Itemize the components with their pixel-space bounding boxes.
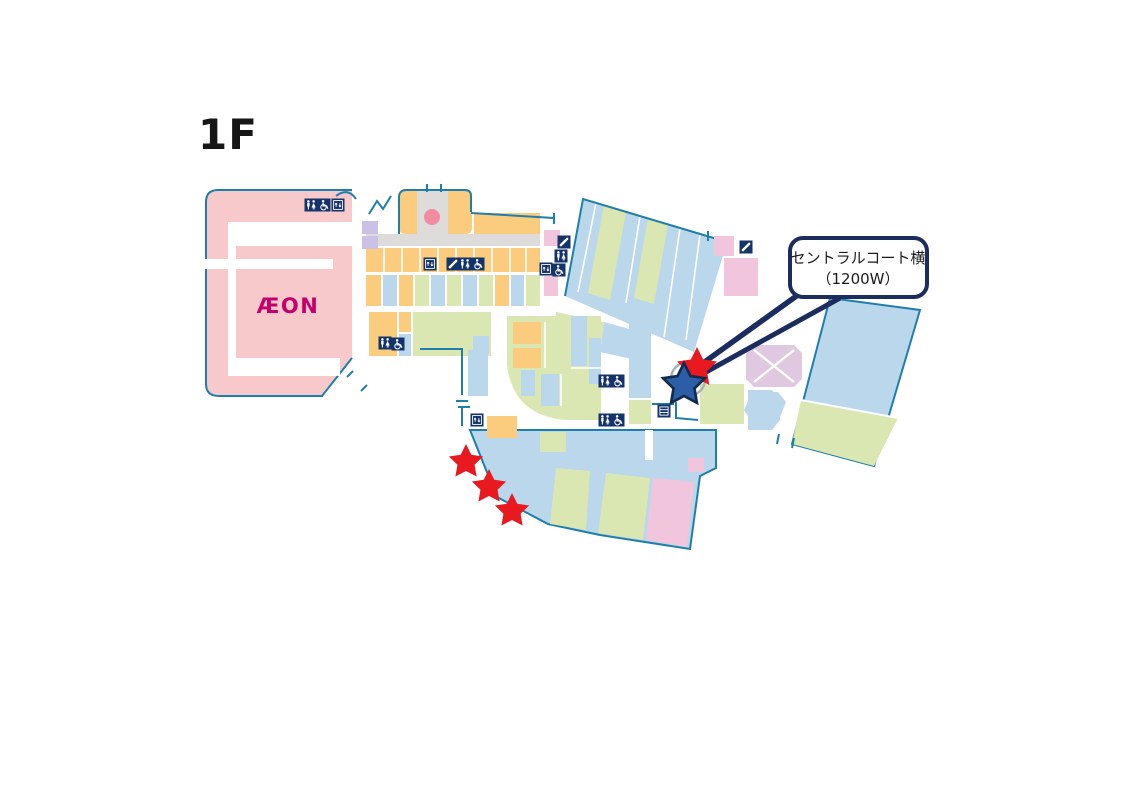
toilet-icon	[599, 414, 612, 427]
location-callout: セントラルコート横 （1200W）	[790, 238, 927, 297]
entrance-ticks	[347, 371, 367, 391]
wheelchair-icon	[553, 264, 566, 277]
callout-box	[790, 238, 927, 297]
wheelchair-icon	[318, 199, 331, 212]
entrance-ticks	[777, 434, 794, 448]
wheelchair-icon	[612, 414, 625, 427]
entrance-zigzag	[369, 196, 391, 214]
east-shop-column	[629, 400, 651, 424]
elevator-icon	[424, 258, 437, 271]
corridor-gray	[366, 234, 540, 246]
court-spot	[424, 209, 440, 225]
east-shop-column	[629, 314, 651, 398]
aeon-building: ÆON	[204, 190, 367, 396]
southwest-wing	[458, 407, 716, 549]
callout-line2: （1200W）	[816, 270, 899, 288]
midwest-shop-band	[369, 312, 491, 426]
south-central-cluster	[652, 384, 780, 430]
elevator-icon	[332, 199, 345, 212]
toilet-icon	[379, 337, 392, 350]
wheelchair-icon	[472, 258, 485, 271]
phone-icon	[558, 236, 571, 249]
mall-floor-map: ÆON	[0, 0, 1123, 794]
callout-line1: セントラルコート横	[791, 249, 926, 267]
aeon-corridor	[204, 259, 333, 269]
phone-icon	[447, 258, 460, 271]
aeon-logo: ÆON	[257, 294, 320, 318]
north-mall-section	[336, 184, 554, 306]
locker-icon	[658, 405, 671, 418]
toilet-icon	[459, 258, 472, 271]
wheelchair-icon	[392, 338, 405, 351]
elevator-icon	[471, 414, 484, 427]
lavender-shop	[362, 236, 378, 249]
north-shop-row	[366, 275, 540, 306]
elevator-icon	[540, 263, 553, 276]
lavender-shop	[362, 221, 378, 234]
toilet-icon	[555, 250, 568, 263]
wheelchair-icon	[612, 375, 625, 388]
toilet-icon	[305, 199, 318, 212]
aeon-corridor	[236, 222, 352, 246]
phone-icon	[740, 241, 753, 254]
central-fan-cluster	[507, 314, 651, 424]
floor-map-page: 1F	[0, 0, 1123, 794]
toilet-icon	[599, 375, 612, 388]
